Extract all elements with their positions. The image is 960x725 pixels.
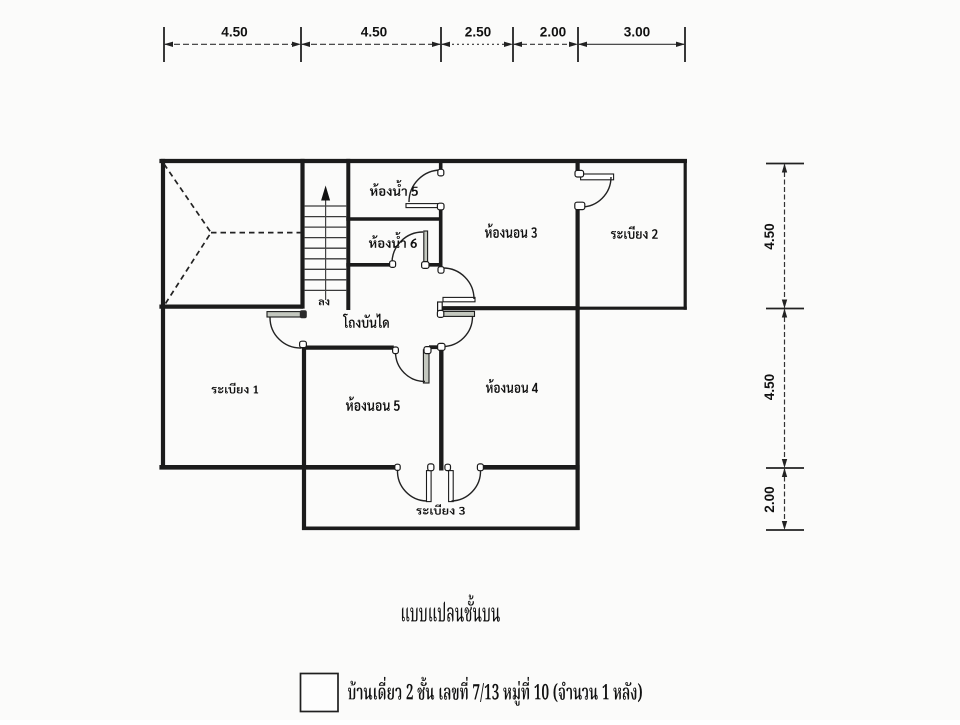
svg-text:2.50: 2.50 <box>465 25 491 40</box>
svg-text:2.00: 2.00 <box>540 25 566 40</box>
svg-text:4.50: 4.50 <box>762 374 777 400</box>
svg-text:3.00: 3.00 <box>624 25 650 40</box>
svg-text:4.50: 4.50 <box>221 25 247 40</box>
svg-text:4.50: 4.50 <box>762 223 777 249</box>
svg-text:2.00: 2.00 <box>762 486 777 512</box>
svg-text:4.50: 4.50 <box>361 25 387 40</box>
